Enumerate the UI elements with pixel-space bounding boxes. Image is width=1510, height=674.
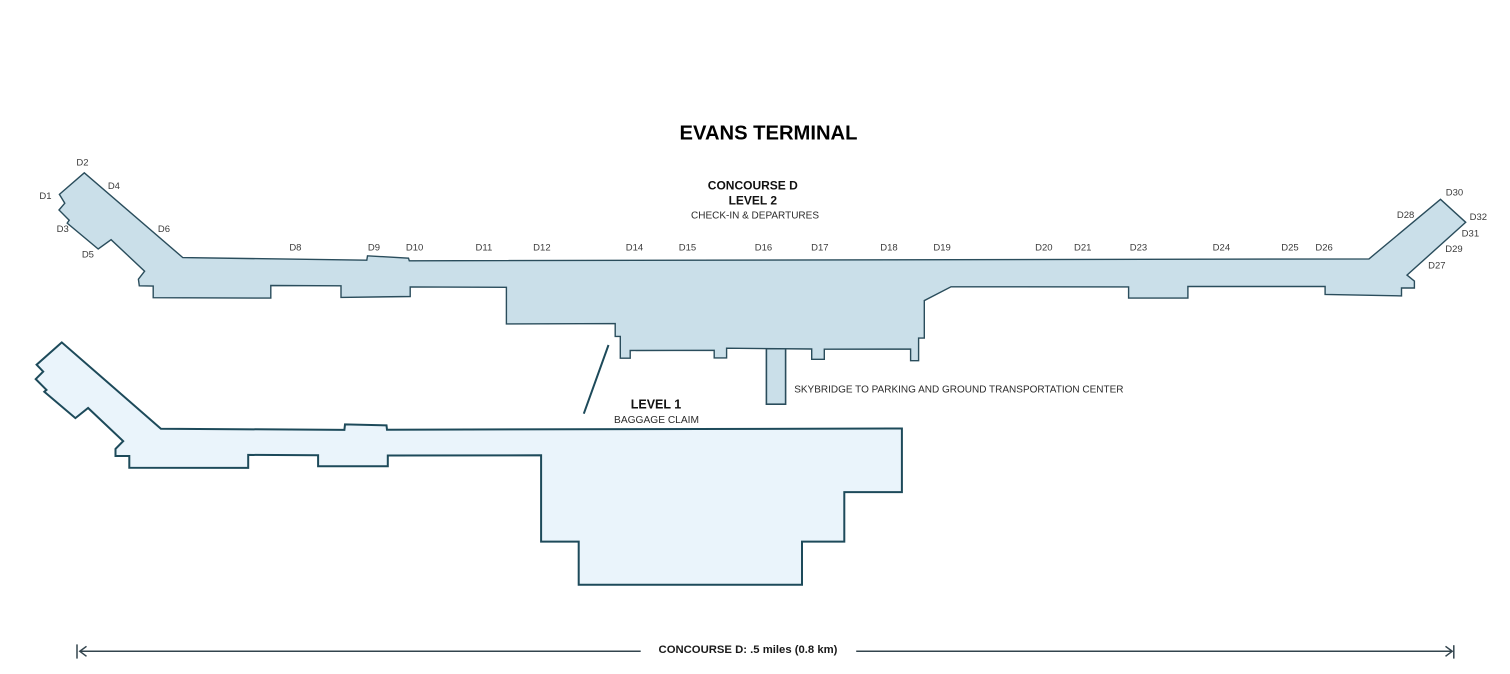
svg-text:D11: D11 [476,243,493,254]
svg-text:D2: D2 [76,158,88,169]
svg-text:D20: D20 [1035,243,1052,254]
svg-text:D3: D3 [57,224,69,235]
svg-text:D4: D4 [108,181,120,192]
svg-text:D27: D27 [1428,260,1445,271]
svg-text:D18: D18 [880,243,897,254]
svg-text:D17: D17 [811,243,828,254]
svg-text:D6: D6 [158,224,170,235]
svg-text:D15: D15 [679,243,696,254]
svg-text:D24: D24 [1213,243,1230,254]
svg-text:D25: D25 [1281,243,1298,254]
svg-text:D9: D9 [368,243,380,254]
svg-text:D10: D10 [406,243,423,254]
svg-text:D29: D29 [1445,244,1462,255]
svg-text:D23: D23 [1130,243,1147,254]
svg-text:D30: D30 [1446,188,1463,199]
svg-text:BAGGAGE CLAIM: BAGGAGE CLAIM [614,415,699,426]
svg-text:D16: D16 [755,243,772,254]
svg-text:D26: D26 [1315,243,1332,254]
svg-text:D32: D32 [1470,212,1487,223]
svg-text:D21: D21 [1074,243,1091,254]
svg-text:D5: D5 [82,249,94,260]
svg-text:D14: D14 [626,243,643,254]
svg-text:D19: D19 [933,243,950,254]
svg-text:CONCOURSE D: CONCOURSE D [708,179,798,193]
svg-text:D28: D28 [1397,210,1414,221]
svg-text:CONCOURSE D: .5 miles (0.8 km): CONCOURSE D: .5 miles (0.8 km) [659,644,838,656]
svg-text:SKYBRIDGE TO PARKING AND GROUN: SKYBRIDGE TO PARKING AND GROUND TRANSPOR… [794,384,1123,395]
svg-text:D31: D31 [1462,228,1479,239]
svg-text:EVANS TERMINAL: EVANS TERMINAL [680,123,858,145]
svg-text:D8: D8 [289,243,301,254]
svg-text:D12: D12 [533,243,550,254]
svg-text:CHECK-IN & DEPARTURES: CHECK-IN & DEPARTURES [691,211,819,222]
svg-text:LEVEL 2: LEVEL 2 [729,193,778,207]
svg-text:D1: D1 [39,191,51,202]
svg-text:LEVEL 1: LEVEL 1 [631,398,682,412]
